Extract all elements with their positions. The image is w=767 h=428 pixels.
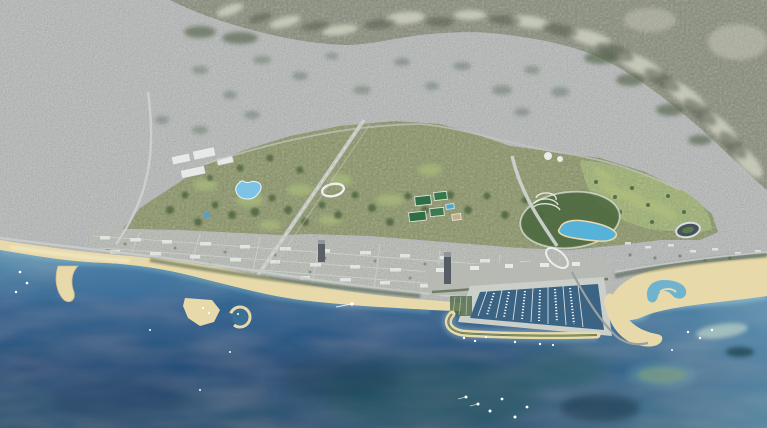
- pond: [204, 212, 211, 219]
- mid-tower: [318, 240, 325, 262]
- shoal-patch: [638, 367, 686, 383]
- aerial-render-canvas: [0, 0, 767, 428]
- harbor-lagoon-water: [232, 309, 248, 325]
- aerial-photo: [0, 0, 767, 428]
- marina-tower-top: [444, 252, 451, 257]
